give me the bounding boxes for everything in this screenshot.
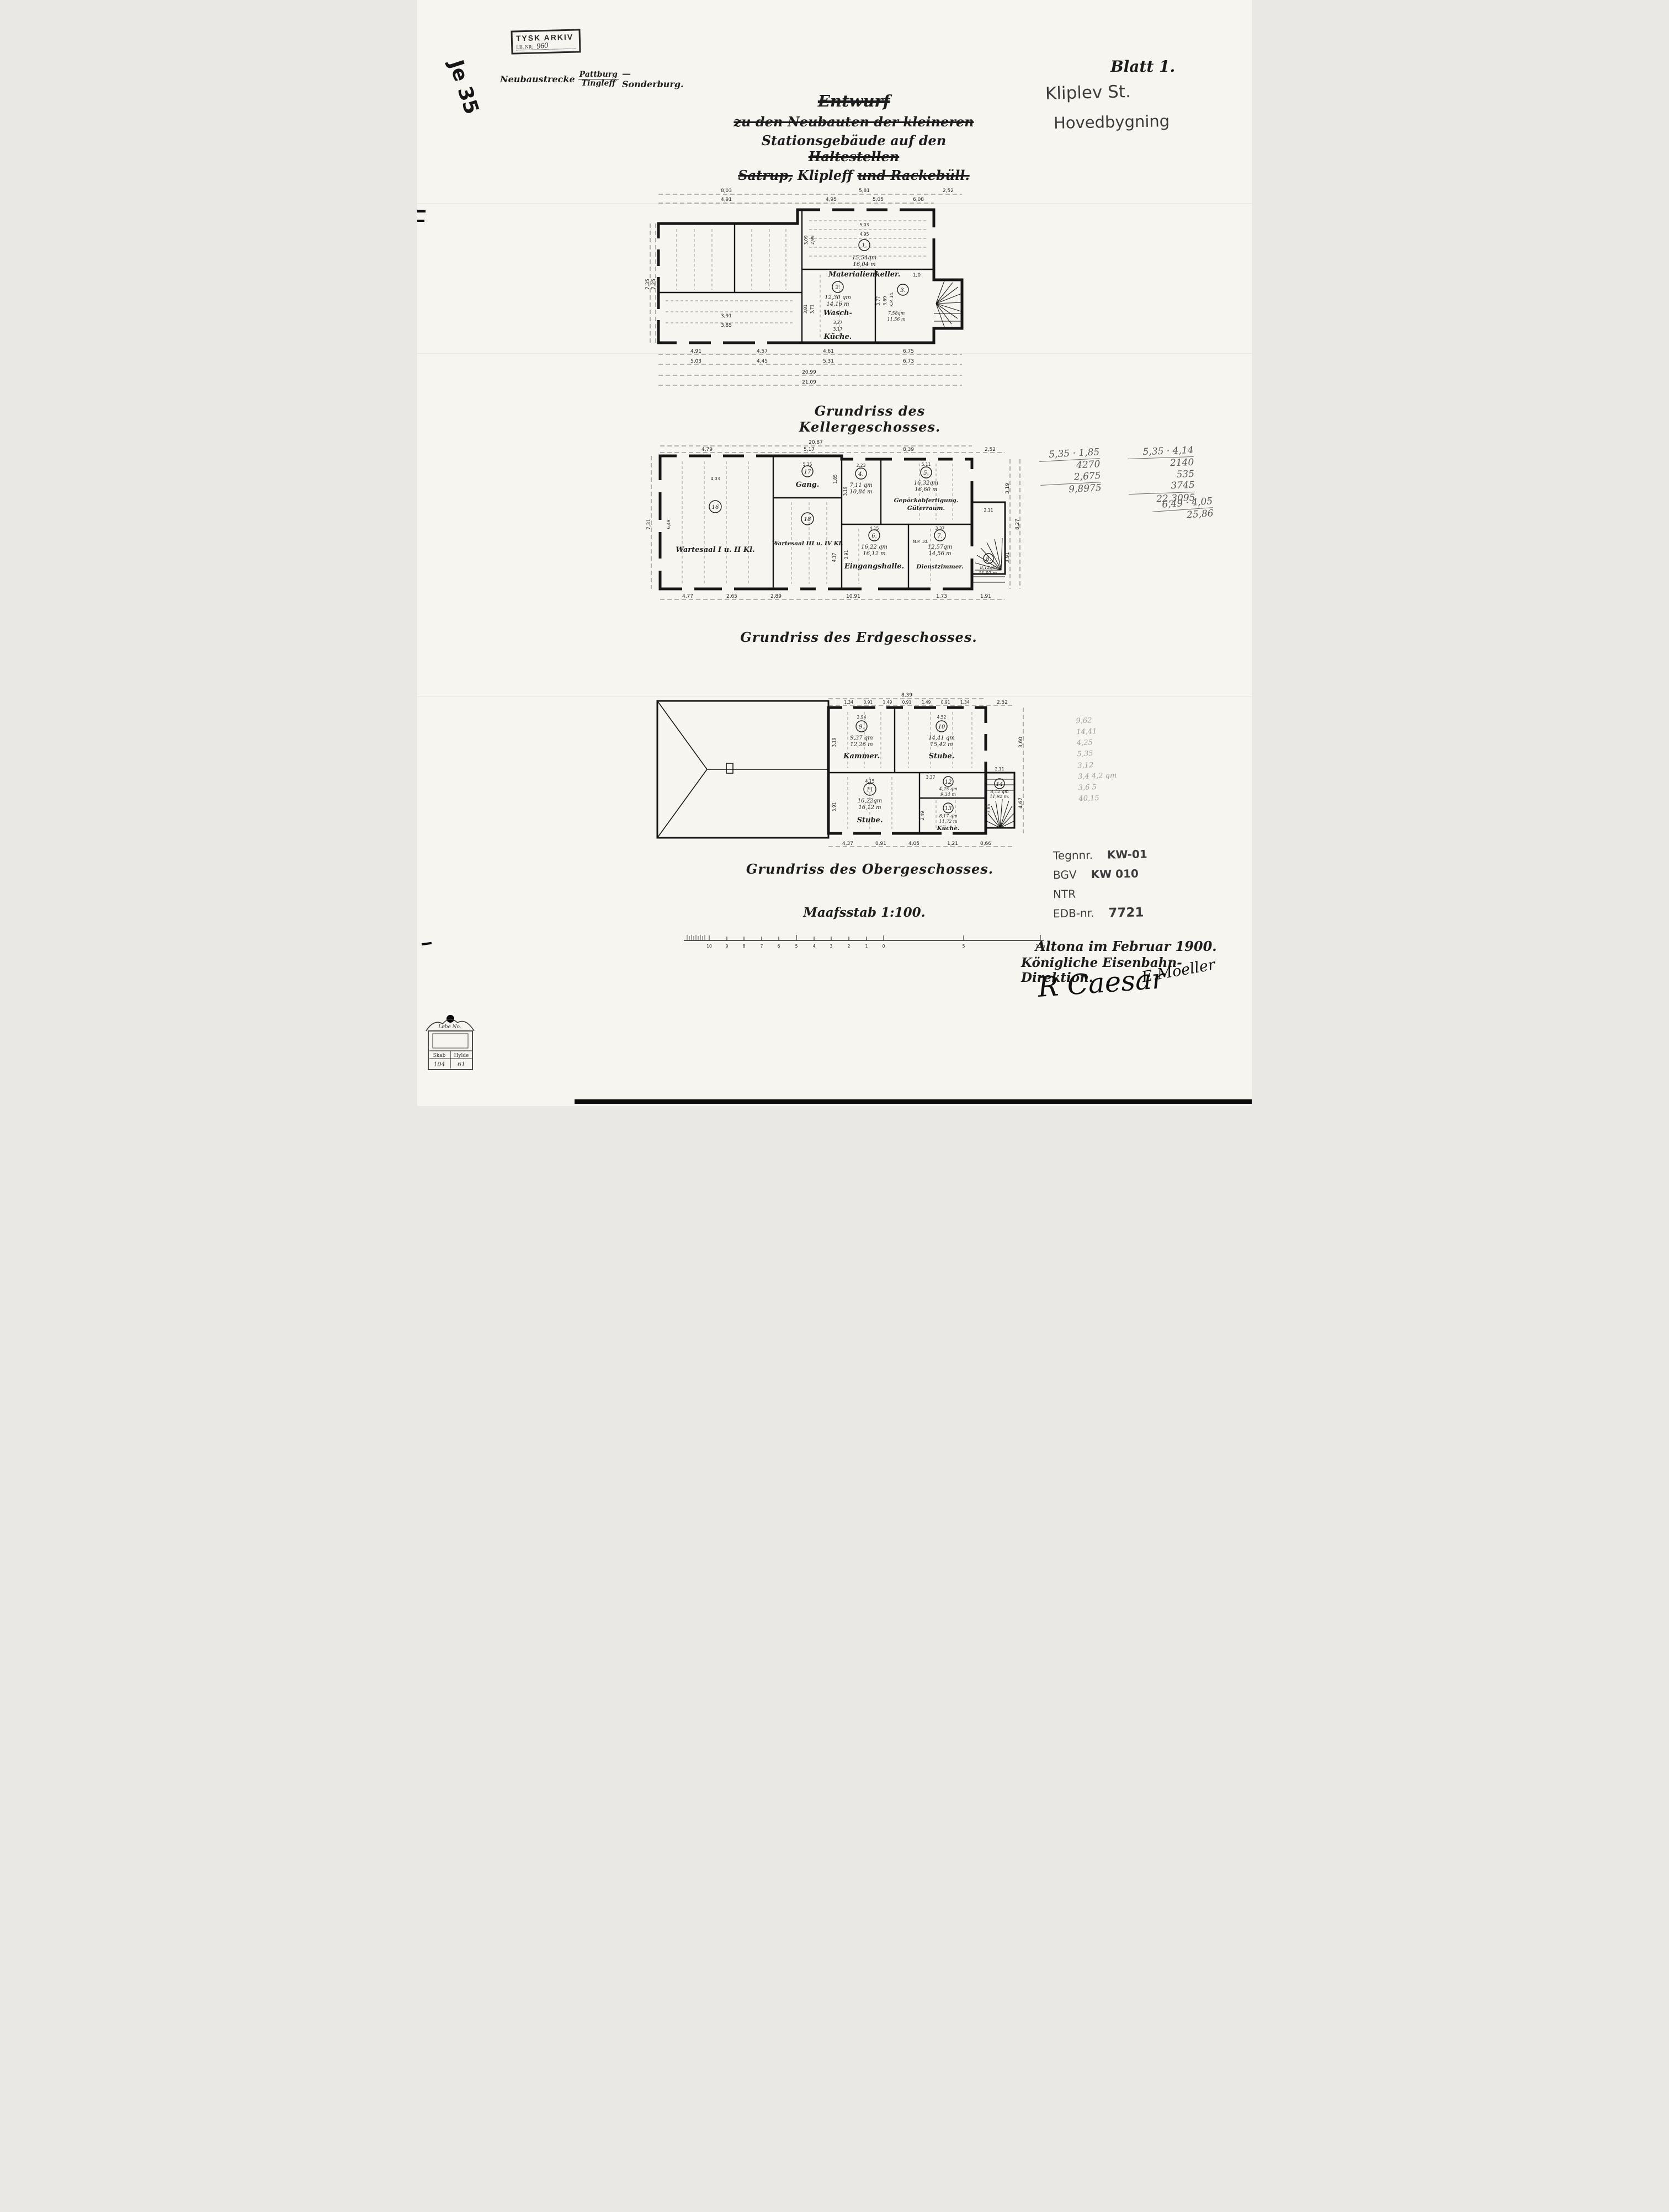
dim-label: 5,31 <box>823 359 834 364</box>
dim-label: 4,52 <box>937 715 947 720</box>
dim-label: 2,65 <box>726 594 737 599</box>
scale-tick-label: 3 <box>830 944 833 949</box>
registry-row: Tegnnr. KW-01 <box>1053 847 1202 863</box>
dim-label: 21,09 <box>802 380 816 385</box>
dim-label: 7,35 <box>645 279 651 290</box>
dim-label: 2,99 <box>810 235 815 244</box>
room-area: 8,12 qm <box>990 789 1008 794</box>
dim-label: 5,35 <box>803 462 812 467</box>
room-umfang: 11,92 m. <box>990 794 1009 799</box>
room-area: 12,30 qm <box>825 295 851 301</box>
dim-label: 3,91 <box>832 802 837 811</box>
dim-label: 6,73 <box>903 359 914 364</box>
room-number: 10 <box>938 724 945 730</box>
scale-tick-label: 9 <box>726 944 729 949</box>
room-umfang: 16,04 m <box>853 262 875 268</box>
route-prefix: Neubaustrecke <box>500 74 575 84</box>
room-number: 16 <box>712 504 719 511</box>
room-number: 1. <box>862 243 867 249</box>
place-date: Altona im Februar 1900. <box>1035 938 1217 954</box>
dim-label: 5,81 <box>859 188 870 194</box>
dim-label: 4,37 <box>842 841 853 847</box>
title-line1: Entwurf <box>818 92 890 110</box>
erdgeschoss-beam-lines <box>682 461 953 584</box>
registry-value: KW-01 <box>1107 847 1147 861</box>
margin-mark <box>417 220 424 222</box>
dim-label: 2,23 <box>857 463 866 468</box>
stamp-panel <box>433 1034 468 1048</box>
room-umfang: 12,26 m <box>850 742 873 748</box>
room-name: Wartesaal I u. II Kl. <box>676 546 754 554</box>
title-line3a: Stationsgebäude auf den <box>762 132 947 148</box>
room-number: 6. <box>871 533 877 539</box>
pencil-note-line: 3,4 4,2 qm <box>1078 770 1117 783</box>
dim-label: 1,34 0,91 1,49 0,91 1,49 0,91 1,34 <box>844 700 969 705</box>
dim-label: 3,19 <box>1005 483 1011 494</box>
dim-label: 2,52 <box>997 700 1008 705</box>
room-umfang: 10,84 m <box>849 489 872 495</box>
dim-label: 3,37 <box>936 526 945 531</box>
room-area: 12,57qm <box>928 544 953 550</box>
dim-label: 5,05 <box>873 197 884 203</box>
room-area: 7,11 qm <box>849 482 872 488</box>
obergeschoss-partitions <box>828 708 986 833</box>
room-name: Wartesaal III u. IV Kl. <box>772 540 843 547</box>
corner-archive-stamp: Løbe No. Skab Hylde 104 61 <box>424 1013 479 1074</box>
room-number: 14 <box>996 781 1003 788</box>
dim-label: 3,81 <box>803 304 808 313</box>
dim-label: 5,03 <box>860 222 869 227</box>
margin-mark <box>417 210 426 212</box>
route-stations: Pattburg Tingleff <box>578 71 619 87</box>
dim-label: 4,91 <box>721 197 732 203</box>
dim-label: 0,91 <box>875 841 886 847</box>
stamp-title: Løbe No. <box>438 1024 461 1030</box>
room-number: 4. <box>858 471 864 477</box>
faint-pencil-notes: 9,62 14,41 4,25 5,35 3,12 3,4 4,2 qm 3,6… <box>1076 715 1118 805</box>
dim-label: 4,91 <box>690 349 701 354</box>
dim-label: 3,85 <box>986 804 991 813</box>
dim-label: 4,03 <box>711 476 720 481</box>
scale-tick-label: 0 <box>883 944 885 949</box>
scale-note: Maafsstab 1:100. <box>782 905 947 920</box>
pencil-calculation-1: 5,35 · 1,85 4270 2,675 9,8975 <box>1039 446 1102 497</box>
scale-tick-label: 4 <box>813 944 816 949</box>
dim-label: 1,73 <box>936 594 947 599</box>
dim-label: 10,91 <box>846 594 860 599</box>
dim-label: 1,0 <box>913 273 921 278</box>
pencil-calculation-3: 6,49 · 4,05 25,86 <box>1152 496 1214 523</box>
room-name: Dienstzimmer. <box>916 563 963 570</box>
room-number: 3. <box>900 288 906 294</box>
scale-tick-label: 2 <box>848 944 851 949</box>
obergeschoss-outer-walls <box>828 708 986 833</box>
scale-tick-label: 5 <box>795 944 798 949</box>
registry-label: EDB-nr. <box>1053 906 1094 921</box>
title-line4c: und Rackebüll. <box>857 167 969 183</box>
dim-label: 3,91 <box>844 550 849 559</box>
pencil-note-line: 3,6 5 <box>1078 781 1117 794</box>
roof-hip-lines <box>657 701 828 838</box>
dim-label: 1,85 <box>833 474 838 483</box>
dim-label: 4,61 <box>823 349 834 354</box>
dim-label: 3,27 <box>833 320 843 325</box>
room-name: Küche. <box>823 333 852 341</box>
caption-erdgeschoss: Grundriss des Erdgeschosses. <box>732 629 986 645</box>
room-number: 8. <box>986 556 991 562</box>
room-name: Stube. <box>929 752 955 761</box>
pencil-note-line: 4,25 <box>1077 737 1116 749</box>
pencil-note-line: 14,41 <box>1076 726 1115 738</box>
dim-label: 8,39 <box>903 447 914 453</box>
room-umfang: 9,34 m <box>940 792 956 797</box>
title-line3b: Haltestellen <box>809 148 900 164</box>
archive-stamp-label: LB. NR. <box>516 44 533 50</box>
dim-label: 5,11 <box>922 462 931 467</box>
scale-bar-subdivisions <box>687 935 705 940</box>
dim-label: 2,94 <box>857 715 867 720</box>
archive-stamp-value: 960 <box>536 42 548 50</box>
room-number: 17 <box>804 469 811 475</box>
keller-stair <box>934 281 962 327</box>
dim-label: 5,03 <box>690 359 701 364</box>
room-area: 14,41 qm <box>928 735 955 741</box>
registry-label: BGV <box>1053 868 1077 882</box>
pencil-note-line: 3,12 <box>1077 759 1117 772</box>
drawing-sheet: TYSK ARKIV LB. NR. 960 Neubaustrecke Pat… <box>417 0 1252 1106</box>
dim-label: 8,03 <box>721 188 732 194</box>
caption-obergeschoss: Grundriss des Obergeschosses. <box>743 861 997 877</box>
dim-label: 3,17 <box>833 327 843 332</box>
dim-label: 3,91 <box>721 313 732 319</box>
room-area: 9,37 qm <box>850 735 873 741</box>
dim-label: 4,67 <box>1018 797 1024 809</box>
route-station-under: Tingleff <box>578 79 619 88</box>
dim-label: 5,17 <box>804 447 815 453</box>
room-note: N.P. 10. <box>913 539 928 544</box>
pencil-calculation-2: 5,35 · 4,14 2140 535 3745 22,3095 <box>1127 445 1195 506</box>
room-number: 7. <box>937 533 943 539</box>
sheet-number: Blatt 1. <box>1110 57 1175 76</box>
room-umfang: 16,12 m <box>863 551 885 557</box>
dim-label: 6,08 <box>913 197 924 203</box>
scale-tick-label: 1 <box>865 944 868 949</box>
dim-label: 4,15 <box>870 526 879 531</box>
route-note: Neubaustrecke Pattburg Tingleff — Sonder… <box>500 68 660 89</box>
margin-annotation: Je 35 <box>444 57 483 117</box>
dim-label: 6,75 <box>903 349 914 354</box>
title-block: Entwurf zu den Neubauten der kleineren S… <box>724 92 984 186</box>
registry-row: EDB-nr. 7721 <box>1053 905 1202 922</box>
scale-tick-label: 6 <box>778 944 780 949</box>
room-name: Güterraum. <box>907 505 945 512</box>
dim-label: 4,17 <box>832 552 837 562</box>
dim-label: 0,66 <box>980 841 991 847</box>
stamp-col1: Skab <box>433 1053 446 1059</box>
scale-tick-label: 8 <box>743 944 746 949</box>
room-umfang: 14,16 m <box>826 301 849 307</box>
dim-label: 3,19 <box>832 737 837 747</box>
dim-label: 20,99 <box>802 370 816 375</box>
room-number: 13 <box>945 806 952 812</box>
route-station-over: Pattburg <box>578 71 619 79</box>
dim-label: 3,60 <box>1018 737 1024 748</box>
dim-label: 4,57 <box>757 349 768 354</box>
dim-label: 4,15 <box>865 779 875 784</box>
dim-label: 6,49 <box>666 519 671 529</box>
scale-tick-label: 7 <box>761 944 763 949</box>
pencil-note-line: 9,62 <box>1076 715 1115 727</box>
dim-label: 3,77 <box>876 296 881 305</box>
dim-label: 2,52 <box>985 447 996 453</box>
dim-label: 4,79 <box>701 447 713 453</box>
dim-label: 8,27 <box>1015 519 1020 530</box>
room-number: 18 <box>804 517 811 523</box>
dim-label: 3,69 <box>883 296 887 305</box>
room-note: K.P. 14. <box>889 291 894 306</box>
dim-label: 3,37 <box>926 775 936 780</box>
room-name: Gang. <box>796 481 820 489</box>
plan-kellergeschoss: 8,03 5,81 2,52 4,91 4,95 5,05 6,08 7,35 … <box>644 182 1030 403</box>
title-line4b: Klipleff <box>798 167 853 183</box>
scan-edge-bar <box>575 1099 1252 1104</box>
dim-label: 2,49 <box>920 811 925 820</box>
room-number: 2. <box>834 285 841 291</box>
room-area: 8,12qm <box>980 565 997 570</box>
stamp-value1: 104 <box>434 1061 445 1068</box>
dim-label: 3,71 <box>810 304 815 313</box>
dim-label: 2,89 <box>770 594 782 599</box>
dim-label: 20,87 <box>809 440 823 445</box>
stamp-knob <box>447 1015 454 1023</box>
erdgeschoss-dimension-lines <box>651 446 1020 599</box>
room-area: 16,22qm <box>858 798 883 804</box>
pencil-heading-line2: Hovedbygning <box>1054 111 1170 132</box>
room-number: 11 <box>867 787 874 793</box>
dim-label: 1,91 <box>980 594 991 599</box>
stamp-col2: Hylde <box>454 1053 469 1059</box>
room-umfang: 14,56 m <box>928 551 951 557</box>
pencil-note-line: 40,15 <box>1078 793 1118 805</box>
room-area: 4,25 qm <box>938 786 957 791</box>
registry-block: Tegnnr. KW-01 BGV KW 010 NTR EDB-nr. 772… <box>1053 848 1202 926</box>
dim-label: 4,77 <box>682 594 693 599</box>
room-umfang: 16,60 m <box>915 487 937 493</box>
dim-label: 4,95 <box>826 197 837 203</box>
room-umfang: 16,12 m <box>858 805 881 811</box>
room-umfang: 15,42 m <box>930 742 953 748</box>
dim-label: 7,31 <box>646 519 652 530</box>
dim-label: 3,85 <box>721 323 732 328</box>
scale-bar: 10 9 8 7 6 5 4 3 2 1 0 5 10m <box>674 930 1049 953</box>
room-number: 9. <box>859 724 864 730</box>
registry-label: Tegnnr. <box>1053 848 1093 862</box>
dim-label: 2,11 <box>984 508 993 513</box>
dim-label: 3,19 <box>843 486 848 496</box>
route-suffix: — Sonderburg. <box>622 68 684 89</box>
scale-bar-ticks <box>709 935 1040 940</box>
room-name: Stube. <box>857 816 883 825</box>
scale-tick-label: 5 <box>963 944 965 949</box>
margin-mark <box>422 942 432 945</box>
archive-stamp: TYSK ARKIV LB. NR. 960 <box>511 29 581 54</box>
archive-stamp-number-row: LB. NR. 960 <box>516 42 576 51</box>
room-name: Küche. <box>937 825 960 832</box>
room-name: Materialienkeller. <box>828 270 901 279</box>
registry-row: BGV KW 010 <box>1053 866 1202 882</box>
dim-label: 4,05 <box>908 841 919 847</box>
pencil-note-line: 5,35 <box>1077 748 1116 761</box>
caption-kellergeschoss: Grundriss des Kellergeschosses. <box>743 403 997 435</box>
registry-value: KW 010 <box>1091 867 1139 881</box>
dim-label: 3,09 <box>804 235 809 244</box>
room-area: 16,22 qm <box>861 544 887 550</box>
pencil-heading-line1: Kliplev St. <box>1045 82 1131 104</box>
registry-row: NTR <box>1053 885 1202 901</box>
obergeschoss-stair-bay <box>986 773 1014 828</box>
dim-label: 4,95 <box>860 232 869 237</box>
calc-result: 9,8975 <box>1040 482 1102 497</box>
dim-label: 8,39 <box>901 693 912 698</box>
room-umfang: 11,92 m. <box>979 571 998 576</box>
room-area: 15,54qm <box>852 255 877 261</box>
dim-label: 1,21 <box>947 841 958 847</box>
chimney <box>726 763 733 773</box>
room-name: Kammer. <box>843 752 880 761</box>
registry-value: 7721 <box>1108 905 1144 920</box>
registry-label: NTR <box>1053 887 1076 901</box>
room-umfang: 11,56 m <box>887 317 905 322</box>
room-name: Wasch- <box>823 309 852 317</box>
dim-label: 2,52 <box>943 188 954 194</box>
stamp-value2: 61 <box>458 1061 465 1068</box>
title-line4a: Satrup, <box>738 167 793 183</box>
title-line2: zu den Neubauten der kleineren <box>733 114 974 130</box>
room-name: Eingangshalle. <box>844 562 904 571</box>
dim-label: 4,45 <box>757 359 768 364</box>
room-name: Gepäckabfertigung. <box>894 497 959 504</box>
room-number: 12 <box>945 779 952 785</box>
dim-label: 3,91 <box>1005 552 1011 563</box>
room-area: 16,32qm <box>914 480 939 486</box>
room-area: 7,58qm <box>888 311 905 316</box>
plan-erdgeschoss: 20,87 4,79 5,17 8,39 2,52 7,31 3,19 3,91… <box>644 436 1030 629</box>
dim-label: 7,25 <box>651 279 657 290</box>
room-area: 8,17 qm <box>939 813 957 818</box>
plan-obergeschoss: 8,39 1,34 0,91 1,49 0,91 1,49 0,91 1,34 … <box>644 690 1030 855</box>
room-umfang: 11,72 m <box>939 819 957 824</box>
room-number: 5. <box>923 470 929 476</box>
scale-tick-label: 10 <box>706 944 712 949</box>
dim-label: 2,11 <box>995 767 1004 772</box>
